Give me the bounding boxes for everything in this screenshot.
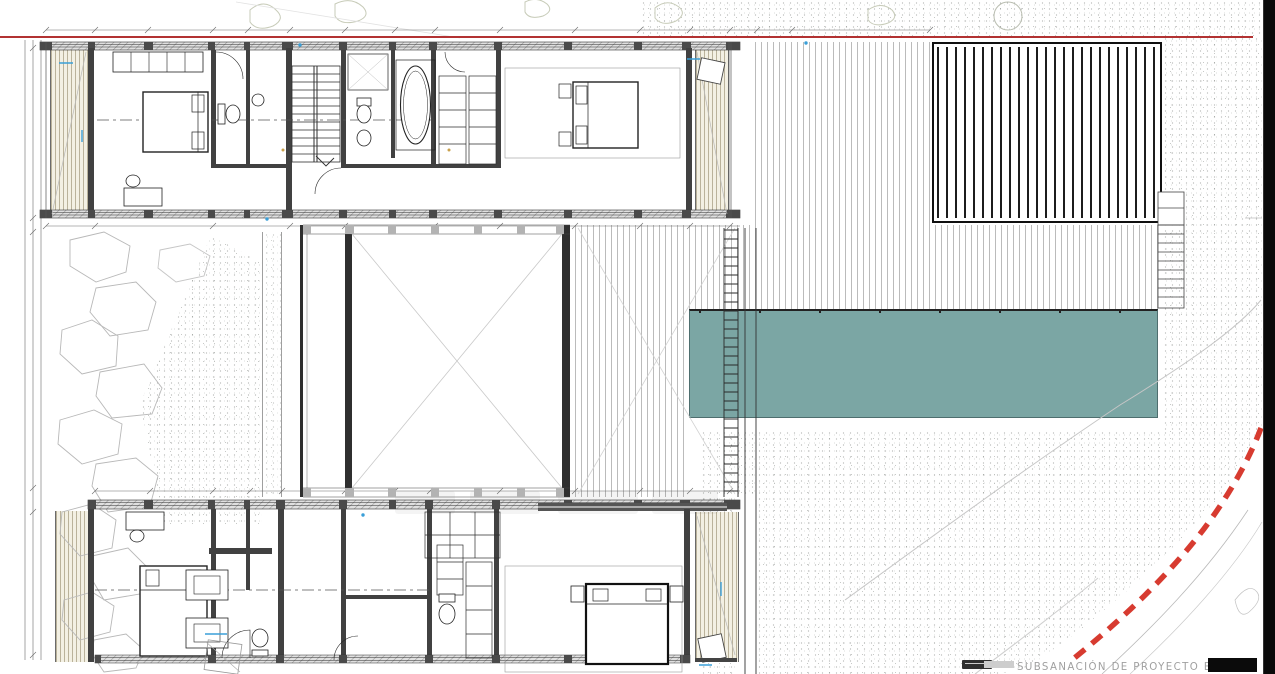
dimension-lines (25, 27, 1262, 660)
pool-bridge (724, 228, 738, 497)
lower-wing (88, 500, 740, 674)
deck-steps (1158, 192, 1184, 308)
floor-plan-canvas: SUBSANACIÓN DE PROYECTO BÁSICO (0, 0, 1275, 674)
plan-linework (0, 0, 1275, 674)
alignment-red-line (0, 36, 1253, 38)
upper-wing (40, 42, 740, 218)
title-black-box (1208, 658, 1257, 672)
staircase (292, 66, 341, 194)
plot-boundary-line (1072, 428, 1261, 660)
landscape-sketches (236, 0, 1022, 38)
photo-edge-bar (1263, 0, 1275, 674)
terrain-contours (845, 300, 1262, 674)
central-courtyard (300, 225, 735, 497)
title-gray-bar (984, 661, 1014, 668)
pool-details (700, 192, 1184, 674)
